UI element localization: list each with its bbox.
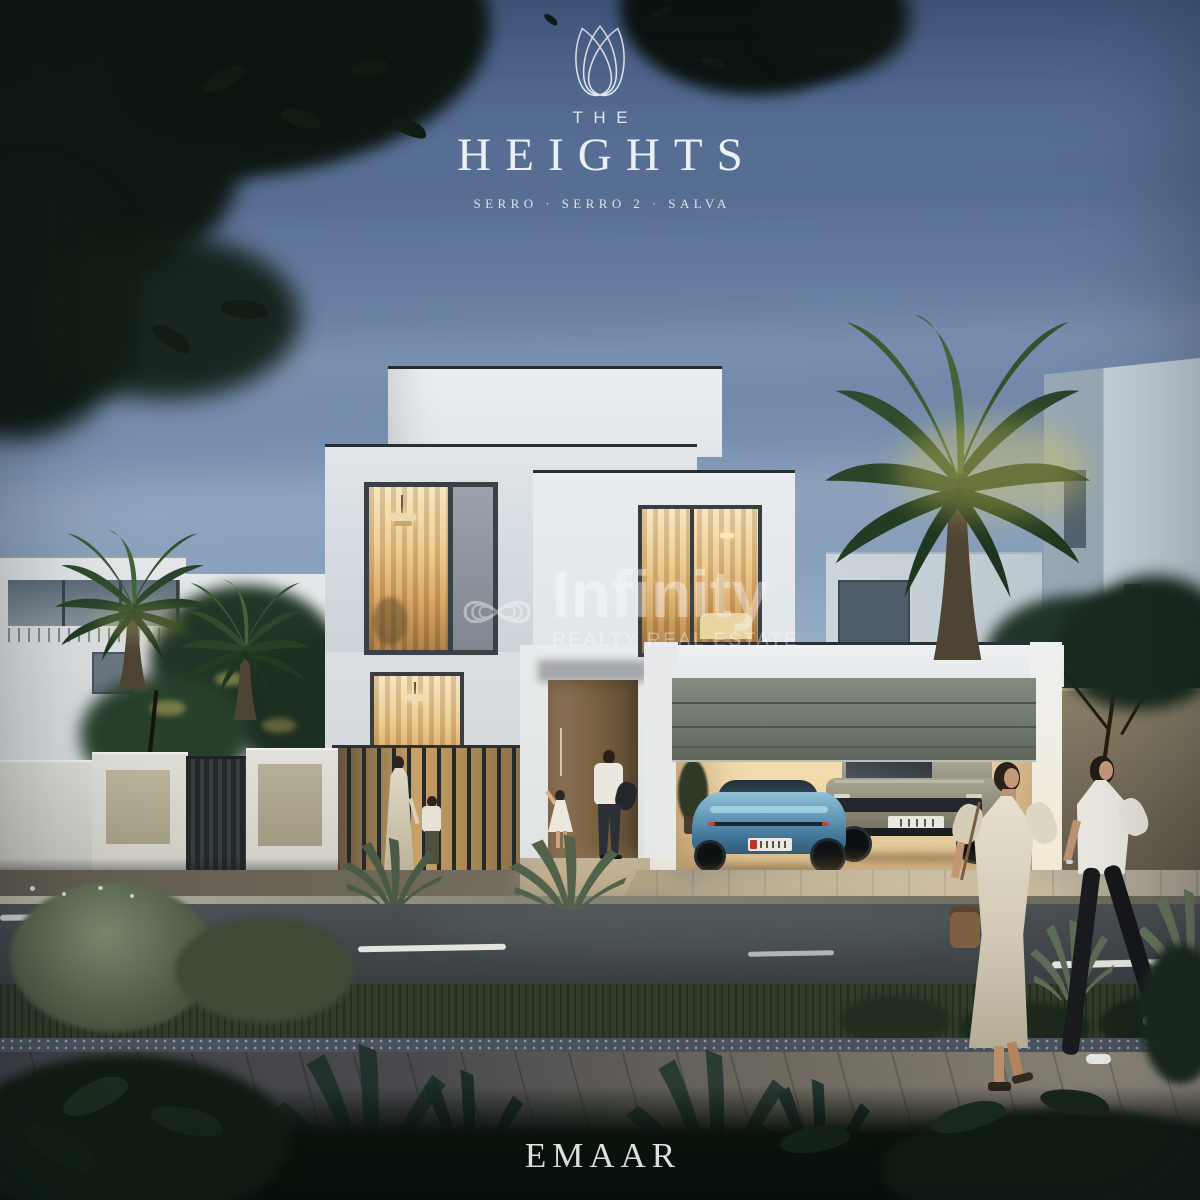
developer-logo: EMAAR xyxy=(0,1136,1200,1176)
flower-specks xyxy=(98,886,103,890)
wall-panel-beige xyxy=(106,770,170,844)
flower-specks xyxy=(30,886,35,891)
chandelier xyxy=(394,521,412,526)
woman-face xyxy=(1004,768,1019,788)
palm-underlight-glow xyxy=(895,420,1090,520)
car-tail-light xyxy=(822,822,829,826)
ceiling-light xyxy=(720,533,734,538)
wall-panel-beige xyxy=(258,764,322,846)
watermark-tagline: REALTY REAL ESTATE xyxy=(552,630,799,652)
man-head xyxy=(603,750,615,764)
woman-pants-leg xyxy=(1061,867,1101,1056)
road-marking-dash xyxy=(748,950,834,957)
boy-shirt xyxy=(422,806,441,832)
flower-specks xyxy=(62,892,66,896)
wall-pillar xyxy=(92,752,188,874)
palm-underlight xyxy=(95,605,185,641)
sports-car-porsche xyxy=(692,780,846,872)
door-groove xyxy=(672,726,1036,728)
woman-watch xyxy=(1066,860,1073,864)
lit-foliage xyxy=(262,718,296,733)
flower-specks xyxy=(130,894,134,898)
woman-face xyxy=(1099,761,1113,780)
agave-plant xyxy=(330,832,450,904)
window-glass xyxy=(369,487,448,650)
door-groove xyxy=(672,702,1036,704)
woman-cream-dress xyxy=(946,762,1062,1096)
brand-prefix: THE xyxy=(390,108,810,128)
brand-name: HEIGHTS xyxy=(390,128,810,182)
person-head xyxy=(392,756,404,770)
brand-communities: SERRO · SERRO 2 · SALVA xyxy=(390,196,810,212)
road-marking-dash xyxy=(358,944,506,953)
watermark-name: Infinity xyxy=(552,562,799,626)
infinity-loops-icon xyxy=(448,584,546,640)
brand-lockup: THE HEIGHTS SERRO · SERRO 2 · SALVA xyxy=(390,22,810,212)
garage-door-panel xyxy=(672,678,1036,762)
hedge-ball xyxy=(840,996,950,1044)
chandelier xyxy=(414,682,416,694)
entry-soffit-shadow xyxy=(538,660,648,682)
woman-shin xyxy=(994,1046,1004,1082)
shoulder-bag xyxy=(950,906,980,948)
car-tail-light xyxy=(708,822,715,826)
bush xyxy=(175,918,355,1023)
pedestrian-women xyxy=(946,756,1158,1096)
heights-arch-monogram-icon xyxy=(571,22,629,100)
chandelier xyxy=(405,694,425,701)
palm-tree-left-2 xyxy=(180,580,310,720)
chandelier xyxy=(401,495,403,513)
plate-characters xyxy=(760,841,788,848)
agave-plant xyxy=(495,828,635,910)
car-license-plate xyxy=(748,838,792,851)
plate-red-badge xyxy=(750,840,757,849)
boundary-wall-left-low xyxy=(0,760,100,874)
car-deck-highlight xyxy=(710,806,828,813)
plant-silhouette xyxy=(373,597,407,645)
car-light-bar xyxy=(712,822,824,826)
door-groove xyxy=(672,746,1036,748)
girl-head xyxy=(555,790,565,801)
woman-sneaker xyxy=(1086,1054,1111,1064)
wall-pillar xyxy=(246,748,338,876)
chandelier xyxy=(390,513,416,521)
poster-canvas: THE HEIGHTS SERRO · SERRO 2 · SALVA Infi… xyxy=(0,0,1200,1200)
